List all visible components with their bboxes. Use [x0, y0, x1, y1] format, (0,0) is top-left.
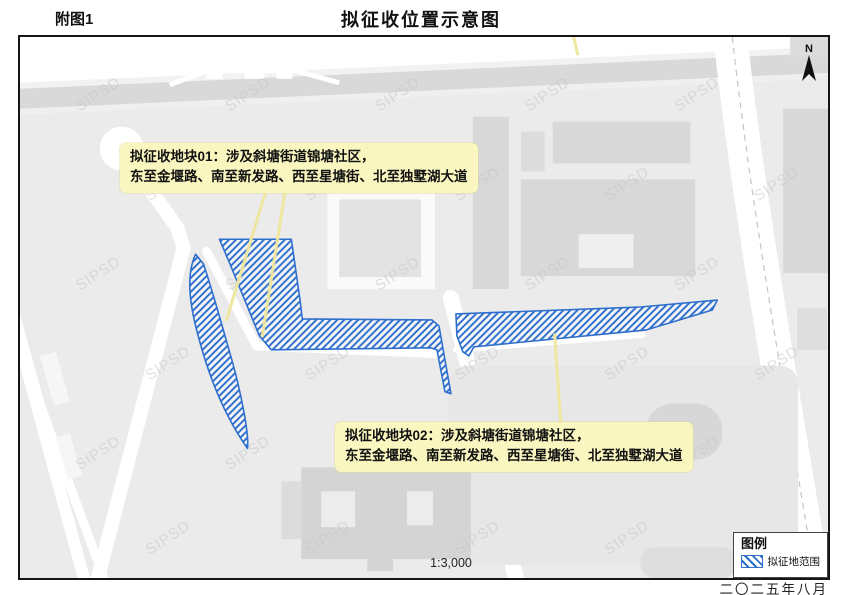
north-arrow: N [797, 44, 821, 88]
top-road-band [20, 37, 828, 115]
page-title: 拟征收位置示意图 [0, 6, 842, 32]
map-date: 二〇二五年八月 [720, 578, 829, 595]
legend-title: 图例 [741, 536, 820, 551]
legend-item: 拟征地范围 [741, 554, 820, 569]
north-label: N [797, 44, 821, 55]
watermark-text: SIPSD [73, 253, 124, 294]
legend-box: 图例 拟征地范围 [733, 532, 828, 578]
legend-item-label: 拟征地范围 [768, 554, 821, 569]
watermark-text: SIPSD [73, 432, 124, 473]
watermark-text: SIPSD [143, 517, 194, 558]
callout-plot-02-line1: 拟征收地块02：涉及斜塘街道锦塘社区， [345, 426, 683, 446]
map-frame: SIPSD SIPSD SIPSD SIPSD SIPSD SIPSD SIPS… [18, 35, 830, 580]
map-canvas: SIPSD SIPSD SIPSD SIPSD SIPSD SIPSD SIPS… [20, 37, 828, 578]
callout-plot-01: 拟征收地块01：涉及斜塘街道锦塘社区， 东至金堰路、南至新发路、西至星塘街、北至… [120, 143, 478, 193]
callout-plot-01-line2: 东至金堰路、南至新发路、西至星塘街、北至独墅湖大道 [130, 167, 468, 187]
callout-plot-02-line2: 东至金堰路、南至新发路、西至星塘街、北至独墅湖大道 [345, 446, 683, 466]
callout-plot-02: 拟征收地块02：涉及斜塘街道锦塘社区， 东至金堰路、南至新发路、西至星塘街、北至… [335, 422, 693, 472]
callout-plot-01-line1: 拟征收地块01：涉及斜塘街道锦塘社区， [130, 147, 468, 167]
map-scale: 1:3,000 [411, 556, 491, 570]
north-arrow-icon [801, 55, 817, 83]
hatch-swatch-icon [741, 555, 763, 568]
page: 附图1 拟征收位置示意图 [0, 0, 842, 595]
